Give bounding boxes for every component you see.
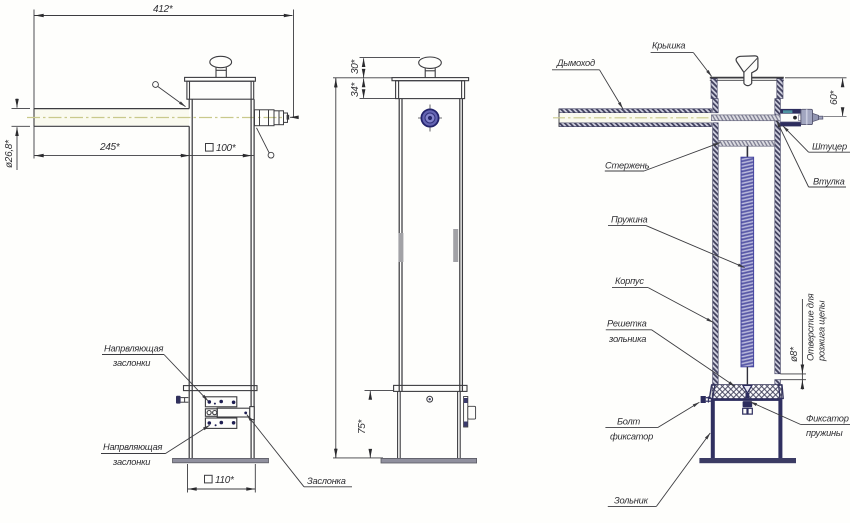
svg-text:розжига щепы: розжига щепы xyxy=(817,300,827,362)
svg-text:Корпус: Корпус xyxy=(615,276,644,286)
svg-text:100*: 100* xyxy=(216,143,237,154)
svg-text:пружины: пружины xyxy=(806,428,843,438)
svg-text:заслонки: заслонки xyxy=(112,358,150,368)
svg-text:Дымоход: Дымоход xyxy=(556,58,595,68)
svg-text:Зольник: Зольник xyxy=(614,496,649,506)
svg-text:Отверстие для: Отверстие для xyxy=(806,293,816,361)
svg-text:Стержень: Стержень xyxy=(605,161,650,171)
svg-text:30*: 30* xyxy=(350,58,361,74)
svg-text:фиксатор: фиксатор xyxy=(610,432,653,442)
svg-text:34*: 34* xyxy=(350,81,361,97)
svg-text:110*: 110* xyxy=(215,475,235,486)
svg-text:Напрвляющая: Напрвляющая xyxy=(104,344,163,354)
svg-text:Пружина: Пружина xyxy=(611,215,648,225)
svg-text:Заслонка: Заслонка xyxy=(307,476,346,486)
svg-text:Напрвляющая: Напрвляющая xyxy=(103,442,162,452)
svg-text:Штуцер: Штуцер xyxy=(812,142,847,152)
svg-text:ø8*: ø8* xyxy=(789,346,800,362)
svg-text:75*: 75* xyxy=(357,418,368,434)
svg-text:ø26,8*: ø26,8* xyxy=(4,139,15,168)
svg-text:245*: 245* xyxy=(99,142,121,153)
svg-text:зольника: зольника xyxy=(608,334,646,344)
svg-text:Решетка: Решетка xyxy=(607,319,647,329)
svg-text:412*: 412* xyxy=(153,4,174,15)
svg-text:заслонки: заслонки xyxy=(112,457,150,467)
svg-text:Крышка: Крышка xyxy=(652,41,685,51)
svg-text:Фиксатор: Фиксатор xyxy=(806,414,849,424)
svg-text:60*: 60* xyxy=(829,89,840,105)
svg-text:Болт: Болт xyxy=(617,417,641,427)
svg-text:Втулка: Втулка xyxy=(813,177,845,187)
